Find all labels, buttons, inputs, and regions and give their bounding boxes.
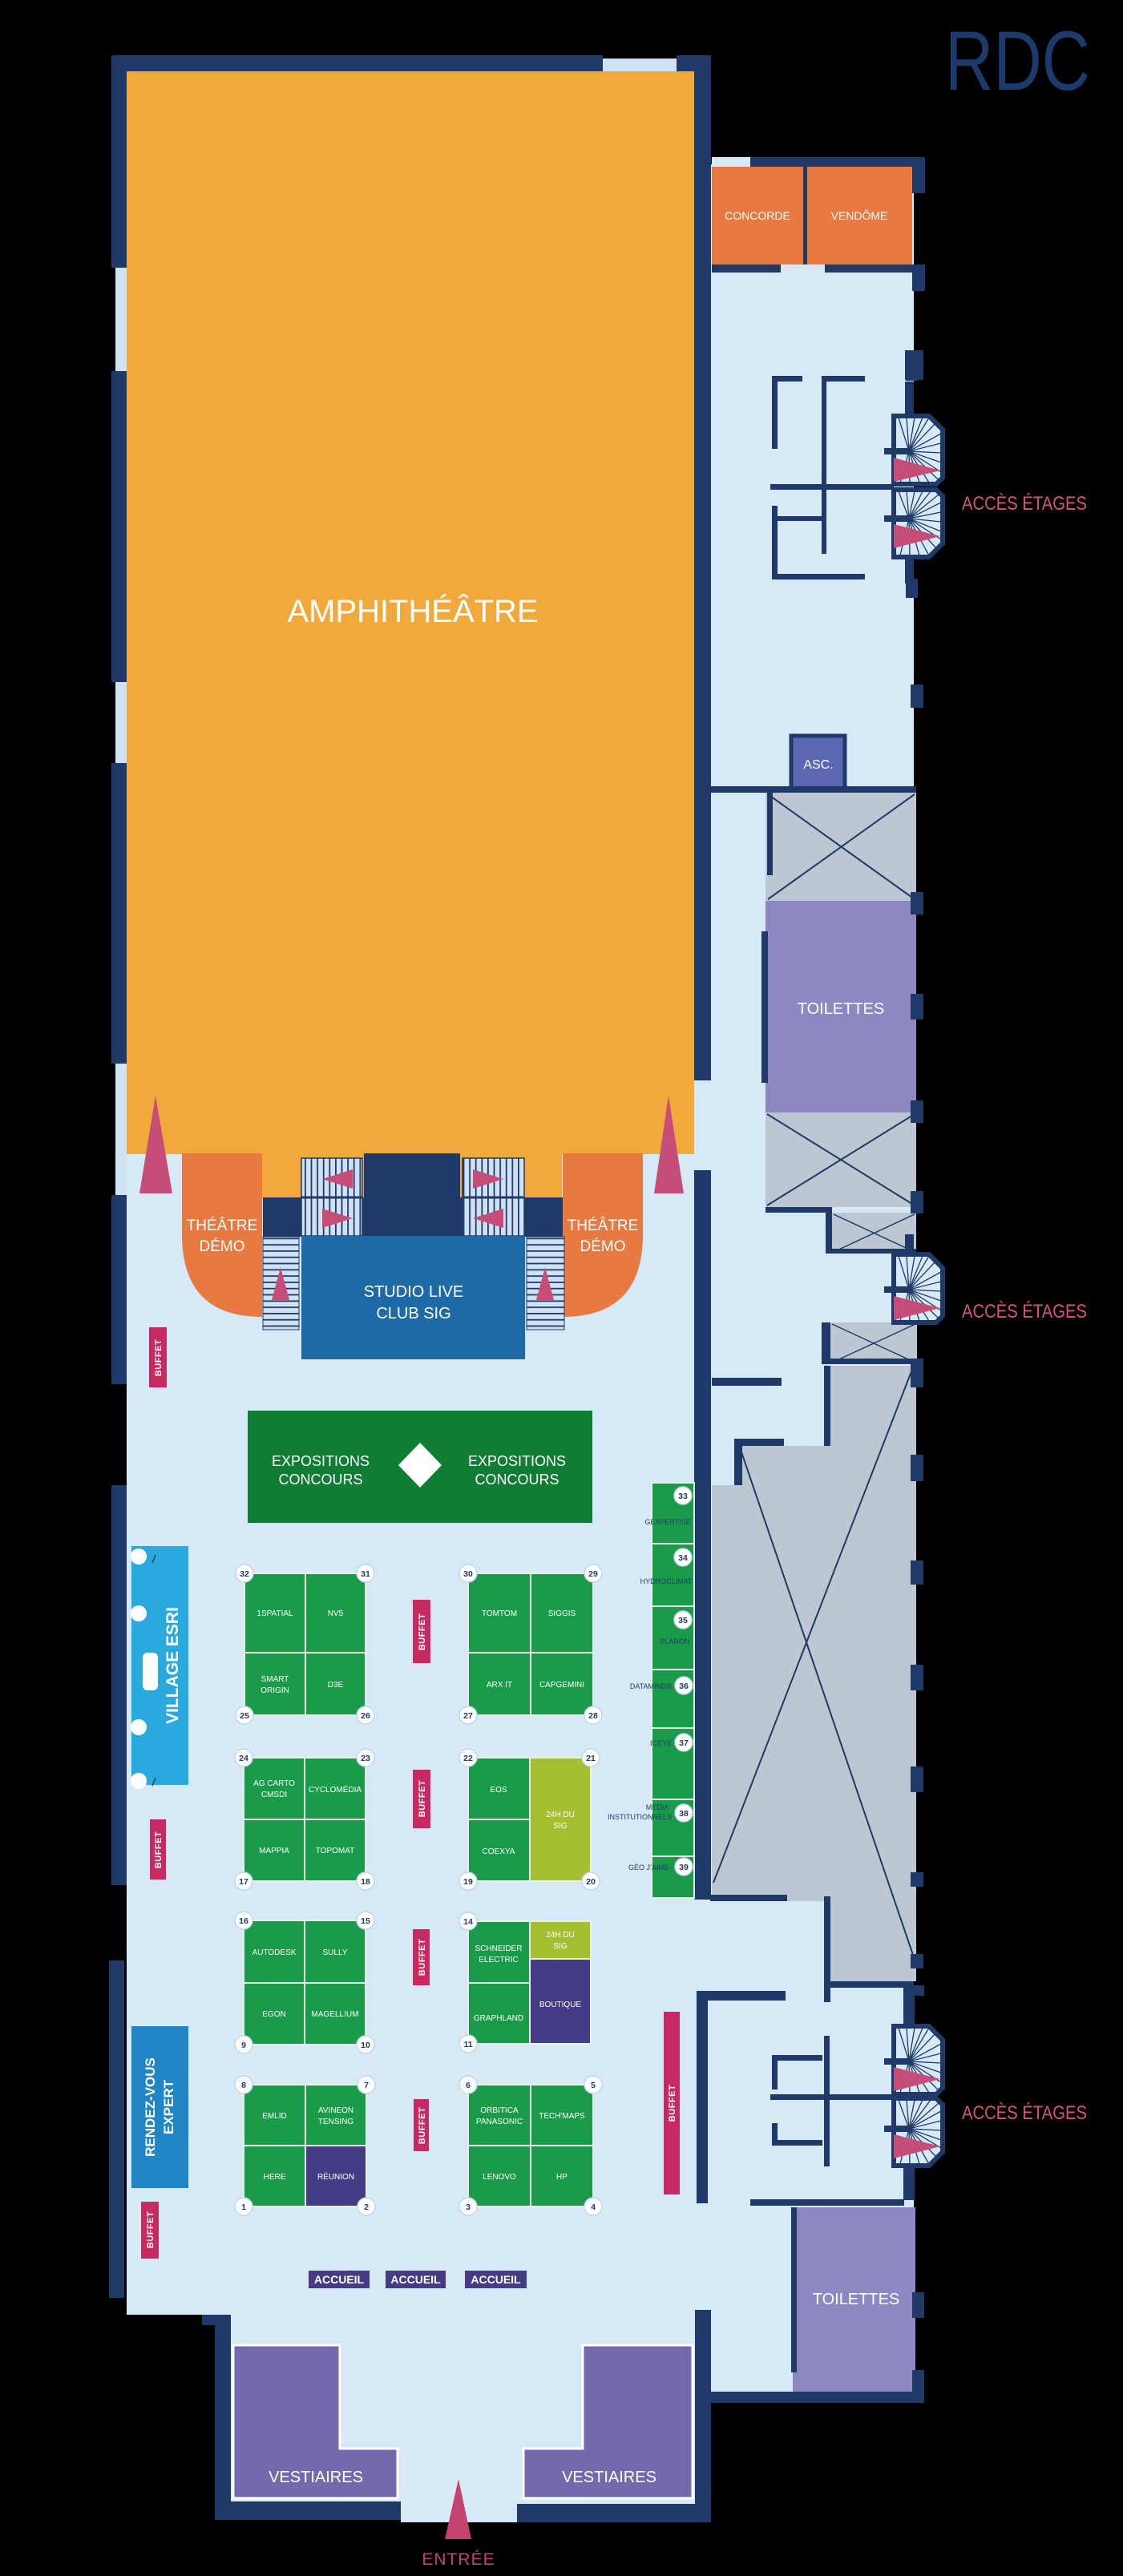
svg-text:1SPATIAL: 1SPATIAL <box>257 1609 293 1618</box>
svg-text:34: 34 <box>678 1553 688 1563</box>
svg-text:SIG: SIG <box>553 1822 567 1831</box>
svg-text:25: 25 <box>240 1711 249 1721</box>
svg-text:DÉMO: DÉMO <box>200 1238 245 1255</box>
svg-text:ORIGIN: ORIGIN <box>261 1686 289 1695</box>
svg-text:ENTRÉE: ENTRÉE <box>422 2550 495 2569</box>
svg-text:BOUTIQUE: BOUTIQUE <box>539 2001 582 2009</box>
svg-text:ACCUEIL: ACCUEIL <box>314 2273 365 2286</box>
svg-text:22: 22 <box>463 1754 473 1763</box>
svg-text:TECH'MAPS: TECH'MAPS <box>539 2112 585 2121</box>
svg-text:36: 36 <box>679 1682 689 1691</box>
svg-text:5: 5 <box>591 2081 596 2090</box>
svg-text:PANASONIC: PANASONIC <box>476 2118 523 2126</box>
svg-text:EXPERT: EXPERT <box>161 2079 176 2134</box>
svg-text:GRAPHLAND: GRAPHLAND <box>474 2014 523 2023</box>
svg-text:COEXYA: COEXYA <box>483 1847 515 1856</box>
svg-text:DÉMO: DÉMO <box>580 1238 626 1255</box>
svg-text:INSTITUTIONNELS: INSTITUTIONNELS <box>608 1813 672 1821</box>
svg-text:VESTIAIRES: VESTIAIRES <box>269 2469 363 2486</box>
svg-text:3: 3 <box>466 2203 471 2212</box>
svg-text:28: 28 <box>588 1711 598 1721</box>
svg-text:ORBITICA: ORBITICA <box>480 2106 519 2115</box>
svg-text:EGON: EGON <box>262 2010 285 2019</box>
svg-text:BUFFET: BUFFET <box>418 1939 427 1976</box>
svg-text:THÉÂTRE: THÉÂTRE <box>187 1217 258 1234</box>
svg-text:NV5: NV5 <box>328 1609 344 1618</box>
svg-text:32: 32 <box>240 1569 249 1579</box>
svg-text:CMSDI: CMSDI <box>261 1791 287 1799</box>
svg-text:CONCOURS: CONCOURS <box>475 1472 559 1488</box>
svg-text:6: 6 <box>466 2081 471 2090</box>
svg-text:VENDÔME: VENDÔME <box>831 209 888 222</box>
svg-text:39: 39 <box>679 1863 689 1872</box>
svg-text:20: 20 <box>586 1877 596 1887</box>
svg-text:GÉO J’AIME-: GÉO J’AIME- <box>628 1863 672 1871</box>
svg-text:1: 1 <box>241 2203 246 2212</box>
svg-text:ACCÈS ÉTAGES: ACCÈS ÉTAGES <box>962 1301 1087 1322</box>
svg-text:PLANON: PLANON <box>660 1637 689 1645</box>
svg-text:TENSING: TENSING <box>318 2118 354 2126</box>
svg-text:TOPOMAT: TOPOMAT <box>316 1847 355 1855</box>
svg-text:24H DU: 24H DU <box>546 1811 575 1819</box>
svg-text:30: 30 <box>463 1569 473 1579</box>
svg-text:BUFFET: BUFFET <box>418 2107 427 2144</box>
svg-text:26: 26 <box>361 1711 370 1721</box>
svg-text:37: 37 <box>679 1738 689 1748</box>
svg-text:GEXPERTISE: GEXPERTISE <box>644 1518 690 1526</box>
svg-text:SIGGIS: SIGGIS <box>548 1609 576 1618</box>
svg-text:SULLY: SULLY <box>323 1948 348 1957</box>
svg-text:RÉUNION: RÉUNION <box>317 2171 354 2182</box>
svg-text:ARX IT: ARX IT <box>487 1681 512 1690</box>
svg-text:2: 2 <box>364 2203 369 2212</box>
svg-text:MEDIA: MEDIA <box>646 1803 669 1811</box>
svg-text:14: 14 <box>463 1917 473 1927</box>
svg-text:DATAMINDR: DATAMINDR <box>630 1682 673 1690</box>
svg-text:SMART: SMART <box>261 1675 289 1684</box>
svg-text:38: 38 <box>679 1809 689 1819</box>
svg-text:CONCOURS: CONCOURS <box>278 1472 362 1488</box>
svg-text:21: 21 <box>586 1754 596 1763</box>
svg-text:HYDROCLIMAT: HYDROCLIMAT <box>640 1577 693 1585</box>
svg-text:11: 11 <box>463 2040 472 2049</box>
svg-text:24H DU: 24H DU <box>546 1931 575 1940</box>
svg-text:16: 16 <box>239 1916 248 1926</box>
svg-text:STUDIO LIVE: STUDIO LIVE <box>364 1283 463 1301</box>
svg-text:23: 23 <box>361 1754 370 1763</box>
svg-text:BUFFET: BUFFET <box>146 2211 156 2248</box>
svg-text:9: 9 <box>241 2041 246 2050</box>
svg-text:BUFFET: BUFFET <box>154 1831 164 1868</box>
svg-text:TOILETTES: TOILETTES <box>798 1000 885 1018</box>
svg-text:EXPOSITIONS: EXPOSITIONS <box>468 1453 566 1469</box>
svg-text:10: 10 <box>361 2041 370 2050</box>
svg-text:D3E: D3E <box>328 1681 344 1690</box>
svg-text:AMPHITHÉÂTRE: AMPHITHÉÂTRE <box>288 593 539 629</box>
svg-text:ACCÈS ÉTAGES: ACCÈS ÉTAGES <box>962 493 1087 515</box>
svg-text:8: 8 <box>241 2081 246 2090</box>
svg-text:BUFFET: BUFFET <box>418 1613 427 1650</box>
svg-text:MAGELLIUM: MAGELLIUM <box>312 2010 359 2019</box>
svg-text:ACCUEIL: ACCUEIL <box>471 2273 521 2286</box>
svg-text:VILLAGE ESRI: VILLAGE ESRI <box>164 1607 182 1724</box>
svg-text:18: 18 <box>361 1877 370 1887</box>
svg-text:19: 19 <box>463 1877 473 1887</box>
svg-text:MAPPIA: MAPPIA <box>259 1847 289 1855</box>
svg-text:EMLID: EMLID <box>262 2112 287 2121</box>
svg-text:TOMTOM: TOMTOM <box>482 1609 517 1618</box>
svg-text:THÉÂTRE: THÉÂTRE <box>568 1217 639 1234</box>
svg-text:7: 7 <box>364 2081 369 2090</box>
svg-text:SCHNEIDER: SCHNEIDER <box>475 1944 523 1953</box>
svg-text:CLUB SIG: CLUB SIG <box>376 1305 450 1322</box>
svg-text:BUFFET: BUFFET <box>154 1339 164 1376</box>
svg-text:17: 17 <box>239 1877 248 1887</box>
svg-text:TOILETTES: TOILETTES <box>813 2291 900 2308</box>
svg-text:CONCORDE: CONCORDE <box>725 209 790 222</box>
svg-text:HP: HP <box>556 2173 568 2182</box>
svg-text:31: 31 <box>361 1569 370 1579</box>
svg-text:AUTODESK: AUTODESK <box>252 1948 297 1957</box>
svg-text:ASC.: ASC. <box>803 758 833 772</box>
svg-text:AVINEON: AVINEON <box>318 2106 353 2115</box>
svg-text:29: 29 <box>588 1569 598 1579</box>
svg-text:4: 4 <box>591 2203 596 2212</box>
svg-text:24: 24 <box>239 1754 248 1763</box>
svg-text:ACCÈS ÉTAGES: ACCÈS ÉTAGES <box>962 2102 1087 2124</box>
svg-text:ACCUEIL: ACCUEIL <box>390 2273 441 2286</box>
svg-text:LENOVO: LENOVO <box>483 2173 516 2182</box>
svg-text:HERE: HERE <box>264 2173 286 2182</box>
svg-text:SIG: SIG <box>553 1942 567 1951</box>
svg-text:15: 15 <box>361 1916 370 1926</box>
svg-text:ICEYE: ICEYE <box>650 1739 672 1747</box>
svg-text:RDC: RDC <box>945 14 1090 108</box>
svg-text:CYCLOMÉDIA: CYCLOMÉDIA <box>309 1784 362 1795</box>
svg-text:RENDEZ-VOUS: RENDEZ-VOUS <box>143 2057 158 2157</box>
svg-text:EOS: EOS <box>490 1786 507 1795</box>
svg-text:AG CARTO: AG CARTO <box>253 1779 295 1788</box>
svg-text:35: 35 <box>678 1616 688 1625</box>
svg-text:BUFFET: BUFFET <box>668 2085 677 2122</box>
svg-text:CAPGEMINI: CAPGEMINI <box>539 1681 584 1690</box>
svg-text:EXPOSITIONS: EXPOSITIONS <box>272 1453 370 1469</box>
svg-text:ELECTRIC: ELECTRIC <box>479 1956 518 1964</box>
svg-text:27: 27 <box>463 1711 473 1721</box>
svg-text:VESTIAIRES: VESTIAIRES <box>562 2469 656 2486</box>
svg-text:33: 33 <box>678 1492 688 1501</box>
svg-text:BUFFET: BUFFET <box>418 1780 427 1817</box>
